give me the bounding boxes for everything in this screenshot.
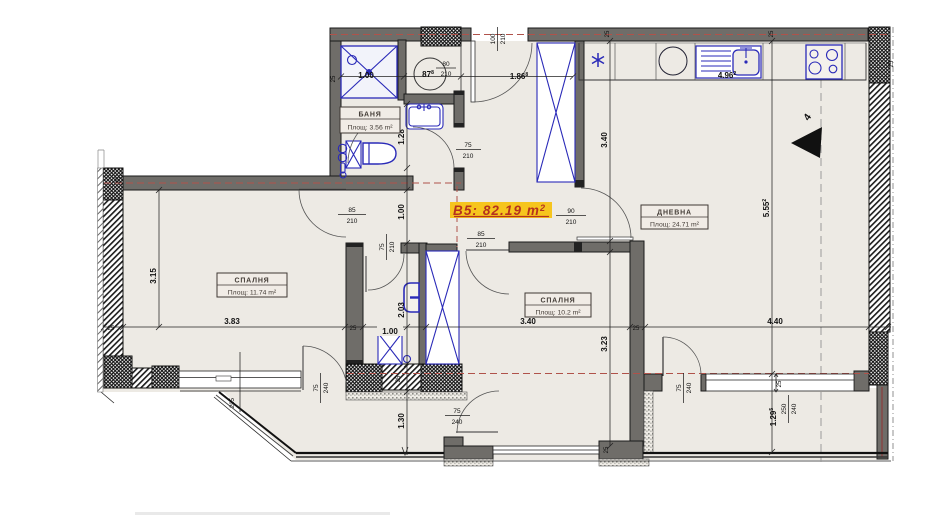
svg-text:СПАЛНЯ: СПАЛНЯ [234,278,269,285]
svg-text:СПАЛНЯ: СПАЛНЯ [540,298,575,305]
svg-text:25: 25 [605,30,611,37]
svg-text:3.40: 3.40 [520,317,536,326]
svg-text:210: 210 [463,153,474,160]
svg-text:75: 75 [453,408,461,415]
svg-text:25: 25 [633,326,640,332]
svg-text:85: 85 [477,231,485,238]
svg-text:250: 250 [781,403,788,414]
svg-text:210: 210 [566,219,577,226]
svg-text:75: 75 [676,384,683,392]
svg-text:75: 75 [313,384,320,392]
svg-text:25: 25 [108,326,115,332]
svg-text:3.83: 3.83 [224,317,240,326]
svg-text:ДНЕВНА: ДНЕВНА [657,210,692,217]
svg-text:210: 210 [347,218,358,225]
svg-text:25: 25 [604,446,610,453]
svg-text:240: 240 [791,403,798,414]
svg-text:25: 25 [350,326,357,332]
svg-text:240: 240 [323,382,330,393]
svg-text:25: 25 [396,375,402,382]
svg-text:210: 210 [441,71,452,78]
svg-text:2.03: 2.03 [397,302,406,318]
svg-text:1.30: 1.30 [397,413,406,429]
svg-text:210: 210 [389,241,396,252]
svg-text:25: 25 [889,60,895,67]
svg-text:90: 90 [567,208,575,215]
svg-text:80: 80 [442,61,450,68]
svg-text:75: 75 [464,142,472,149]
svg-text:210: 210 [476,242,487,249]
svg-text:85: 85 [348,207,356,214]
svg-text:75: 75 [379,243,386,251]
svg-text:Площ: 10.2 m²: Площ: 10.2 m² [535,310,581,317]
svg-text:Площ: 3.56 m²: Площ: 3.56 m² [347,125,393,132]
svg-text:Площ: 24.71 m²: Площ: 24.71 m² [650,222,700,229]
svg-text:БАНЯ: БАНЯ [358,112,381,119]
svg-text:100: 100 [490,33,497,44]
svg-text:25: 25 [331,75,337,82]
svg-text:3.40: 3.40 [600,132,609,148]
svg-text:205: 205 [230,397,236,408]
svg-text:25: 25 [116,176,122,183]
svg-text:240: 240 [686,382,693,393]
svg-text:1.00: 1.00 [358,71,374,80]
svg-text:3.15: 3.15 [149,268,158,284]
svg-text:Площ: 11.74 m²: Площ: 11.74 m² [228,290,277,297]
svg-text:1.00: 1.00 [382,327,398,336]
svg-text:3.23: 3.23 [600,336,609,352]
svg-text:25: 25 [777,380,783,387]
svg-text:1.00: 1.00 [397,204,406,220]
svg-text:240: 240 [452,419,463,426]
svg-text:4.40: 4.40 [767,317,783,326]
svg-text:25: 25 [769,30,775,37]
svg-text:210: 210 [500,33,507,44]
